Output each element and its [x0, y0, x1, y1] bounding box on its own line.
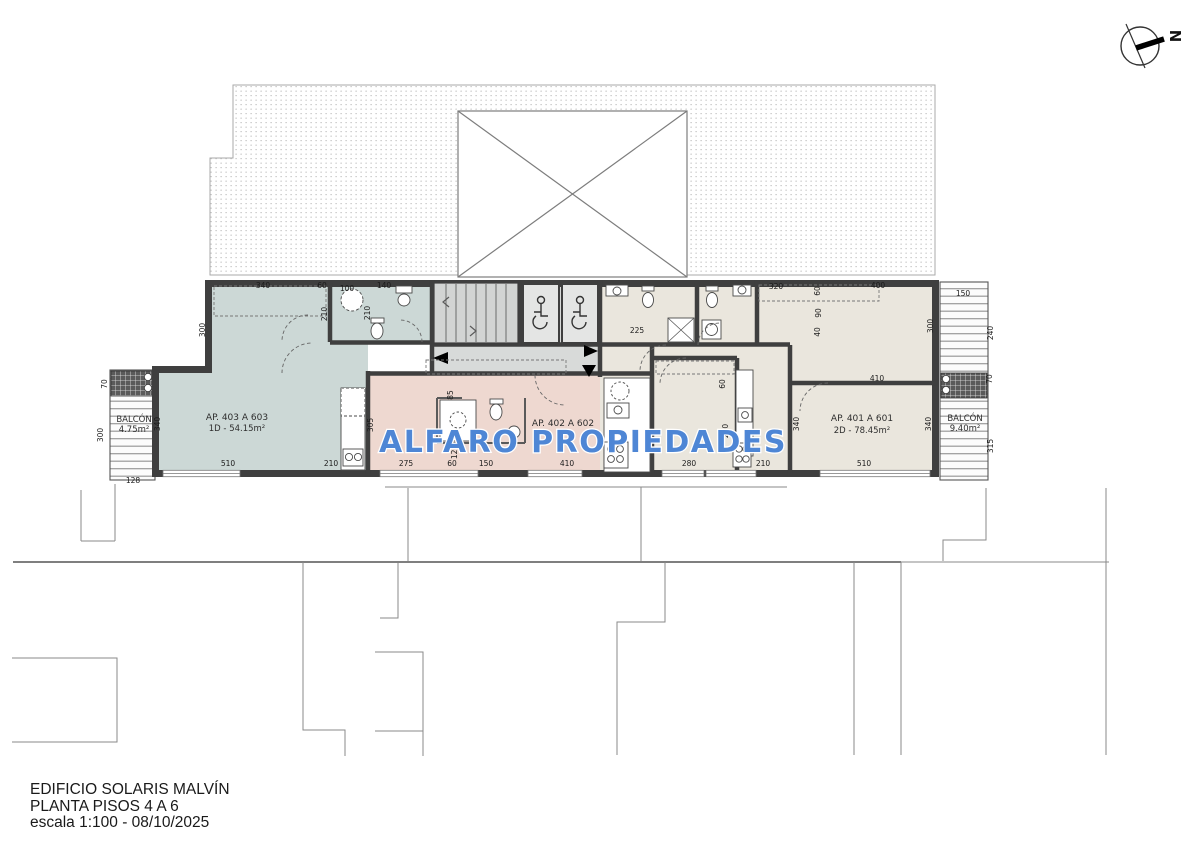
north-needle	[1136, 39, 1164, 48]
right-balcony-area: 9.40m²	[950, 424, 981, 434]
dimension-label: 340	[792, 417, 801, 432]
dimension-label: 340	[153, 417, 162, 432]
dimension-label: 90	[814, 308, 823, 318]
dimension-label: 150	[479, 459, 494, 468]
dimension-label: 410	[560, 459, 575, 468]
apartment-401-detail: 2D - 78.45m²	[834, 426, 890, 436]
apartment-403-detail: 1D - 54.15m²	[209, 424, 265, 434]
page: { "north": { "label": "N" }, "watermark"…	[0, 0, 1191, 842]
dimension-label: 300	[96, 428, 105, 443]
dimension-label: 280	[682, 459, 697, 468]
title-scale: escala 1:100 - 08/10/2025	[30, 815, 230, 832]
void-cross-box	[458, 111, 687, 277]
right-balcony-label: BALCÓN	[947, 412, 982, 424]
dimension-label: 510	[221, 459, 236, 468]
dimension-label: 60	[317, 281, 327, 290]
dimension-label: 320	[769, 282, 784, 291]
dimension-label: 410	[870, 374, 885, 383]
title-block: EDIFICIO SOLARIS MALVÍN PLANTA PISOS 4 A…	[30, 782, 230, 832]
lot-boundary-lines	[12, 484, 1109, 756]
dimension-label: 210	[324, 459, 339, 468]
dimension-label: 240	[986, 326, 995, 341]
dimension-label: 225	[630, 326, 645, 335]
dimension-label: 305	[366, 418, 375, 433]
dimension-label: 128	[126, 476, 141, 485]
left-balcony-area: 4.75m²	[119, 425, 150, 435]
left-balcony-label: BALCÓN	[116, 413, 151, 425]
stair-core	[434, 283, 518, 343]
dimension-label: 210	[320, 307, 329, 322]
title-plan: PLANTA PISOS 4 A 6	[30, 799, 230, 816]
dimension-label: 70	[100, 379, 109, 389]
dimension-label: 210	[363, 306, 372, 321]
dimension-label: 340	[256, 281, 271, 290]
apartment-403-name: AP. 403 A 603	[206, 413, 268, 423]
north-label: N	[1166, 30, 1184, 43]
apartment-401-name: AP. 401 A 601	[831, 414, 893, 424]
dimension-label: 70	[985, 374, 994, 384]
dimension-label: 510	[857, 459, 872, 468]
watermark-text: ALFARO PROPIEDADES	[379, 425, 787, 460]
dimension-label: 300	[198, 323, 207, 338]
dimension-label: 140	[377, 281, 392, 290]
dimension-label: 100	[340, 284, 355, 293]
dimension-label: 60	[447, 459, 457, 468]
dimension-label: 210	[756, 459, 771, 468]
left-balcony: BALCÓN 4.75m²	[110, 370, 155, 480]
dimension-label: 60	[813, 286, 822, 296]
title-building: EDIFICIO SOLARIS MALVÍN	[30, 782, 230, 799]
dimension-label: 340	[924, 417, 933, 432]
north-indicator: N	[1121, 24, 1184, 68]
dimension-label: 85	[446, 390, 455, 400]
dimension-label: 40	[813, 327, 822, 337]
dimension-label: 275	[399, 459, 414, 468]
dimension-label: 60	[718, 379, 727, 389]
site-hatch-area	[210, 85, 935, 277]
floor-plan-drawing: N BALCÓN 4.75m² BALCÓN 9.40m²	[0, 0, 1191, 842]
dimension-label: 150	[956, 289, 971, 298]
dimension-label: 315	[986, 439, 995, 454]
dimension-label: 300	[926, 319, 935, 334]
dimension-label: 400	[871, 281, 886, 290]
right-balcony: BALCÓN 9.40m²	[940, 282, 988, 480]
